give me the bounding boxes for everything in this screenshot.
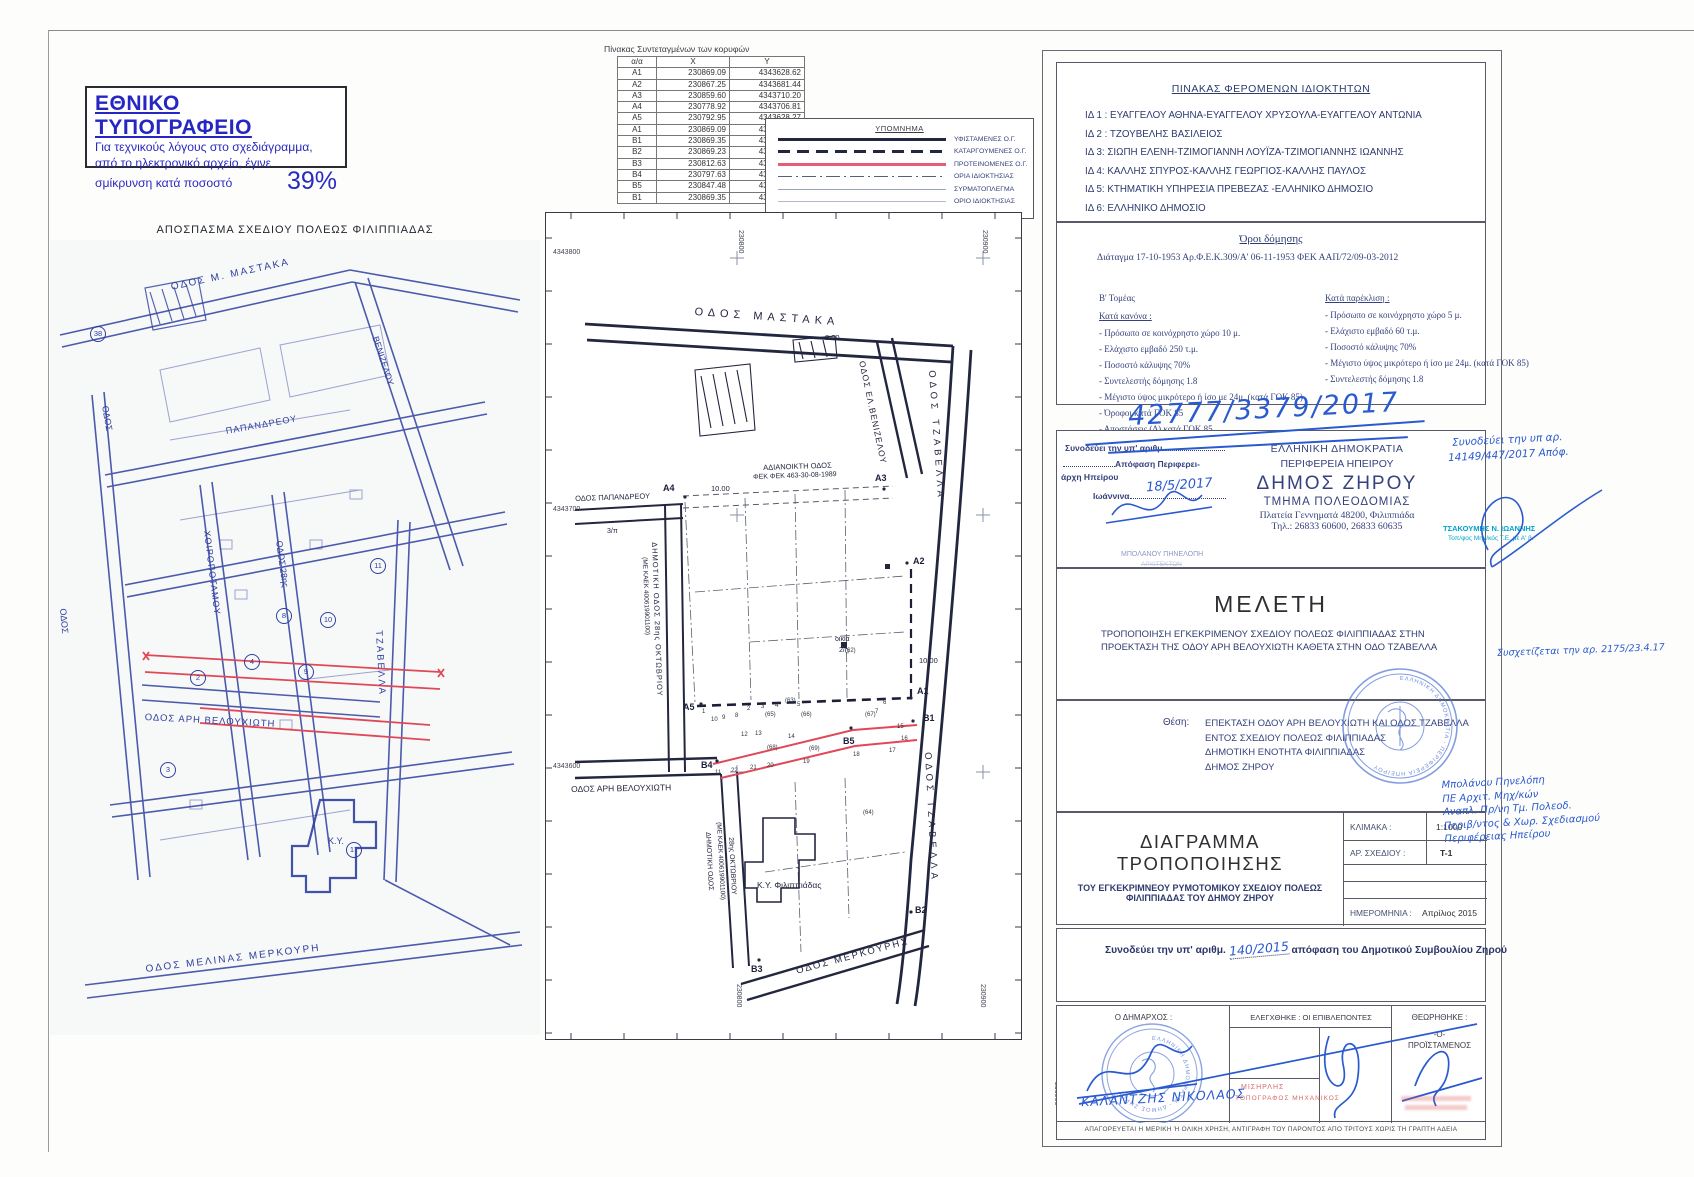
surveyor-stamp-role: Τοπ/φος Μηχ/κός Τ.Ε. με Α' β.: [1448, 535, 1534, 542]
col-header: X: [657, 57, 730, 68]
parcel-number-label: (67): [865, 712, 876, 718]
circled-parcel-number: 4: [244, 654, 260, 670]
legend-line-sample: [778, 150, 946, 153]
council-prefix: Συνοδεύει την υπ' αριθμ.: [1105, 945, 1226, 956]
exception-title: Κατά παρέκλιση :: [1325, 293, 1390, 303]
coord-cell: 4343710.20: [730, 90, 805, 101]
legend-item: ΥΦΙΣΤΑΜΕΝΕΣ Ο.Γ.: [766, 133, 1033, 146]
notice-box: ΕΘΝΙΚΟ ΤΥΠΟΓΡΑΦΕΙΟ Για τεχνικούς λόγους …: [85, 86, 347, 168]
coord-cell: A1: [618, 124, 657, 135]
coord-row: A1230869.094343628.62: [618, 68, 805, 79]
circled-parcel-number: 3: [160, 762, 176, 778]
legend-label: ΥΦΙΣΤΑΜΕΝΕΣ Ο.Γ.: [954, 136, 1016, 143]
coord-cell: 230847.48: [657, 181, 730, 192]
parcel-number-label: 17: [889, 748, 896, 754]
parcel-number-label: 19: [803, 759, 810, 765]
coord-cell: 230792.95: [657, 113, 730, 124]
street-label: οικία: [835, 636, 850, 643]
diagram-subtitle: ΤΟΥ ΕΓΚΕΚΡΙΜΝΕΟΥ ΡΥΜΟΤΟΜΙΚΟΥ ΣΧΕΔΙΟΥ ΠΟΛ…: [1057, 883, 1343, 893]
coord-cell: 230812.63: [657, 158, 730, 169]
term-item: - Ελάχιστο εμβαδό 250 τ.μ.: [1099, 341, 1303, 357]
study-panel: ΜΕΛΕΤΗ ΤΡΟΠΟΠΟΙΗΣΗ ΕΓΚΕΚΡΙΜΕΝΟΥ ΣΧΕΔΙΟΥ …: [1056, 568, 1486, 700]
circled-parcel-number: 17: [346, 842, 362, 858]
signatures-panel: Ο ΔΗΜΑΡΧΟΣ : ΕΛΕΓΧΘΗΚΕ : ΟΙ ΕΠΙΒΛΕΠΟΝΤΕΣ…: [1056, 1005, 1486, 1122]
date-label: ΗΜΕΡΟΜΗΝΙΑ :: [1350, 908, 1412, 918]
faint-red-stamp: [1401, 1096, 1471, 1101]
phone-line: Τηλ.: 26833 60600, 26833 60635: [1217, 521, 1457, 532]
coord-cell: 230869.35: [657, 192, 730, 203]
owner-item: ΙΔ 6: ΕΛΛΗΝΙΚΟ ΔΗΜΟΣΙΟ: [1085, 200, 1485, 219]
location-line: ΕΝΤΟΣ ΣΧΕΔΙΟΥ ΠΟΛΕΩΣ ΦΙΛΙΠΠΙΑΔΑΣ: [1205, 732, 1469, 747]
coord-cell: 230859.60: [657, 90, 730, 101]
building-terms-panel: Όροι δόμησης Διάταγμα 17-10-1953 Αρ.Φ.Ε.…: [1056, 222, 1486, 405]
legend-label: ΟΡΙΑ ΙΔΙΟΚΤΗΣΙΑΣ: [954, 173, 1014, 180]
parcel-number-label: 10: [711, 717, 718, 723]
mayor-label: Ο ΔΗΜΑΡΧΟΣ :: [1057, 1013, 1230, 1022]
checked-label: ΕΛΕΓΧΘΗΚΕ : ΟΙ ΕΠΙΒΛΕΠΟΝΤΕΣ: [1230, 1013, 1392, 1022]
street-label: 10.00: [711, 484, 730, 493]
vertex-label: B4: [701, 760, 713, 770]
vertex-label: B3: [751, 964, 763, 974]
term-item: - Πρόσωπο σε κοινόχρηστο χώρο 10 μ.: [1099, 325, 1303, 341]
vertex-label: A2: [913, 556, 925, 566]
legend-line-sample: [778, 138, 946, 141]
scale-label: ΚΛΙΜΑΚΑ :: [1350, 822, 1391, 832]
legend-label: ΟΡΙΟ ΙΔΙΟΚΤΗΣΙΑΣ: [954, 198, 1015, 205]
coord-cell: B1: [618, 192, 657, 203]
parcel-number-label: 18: [853, 752, 860, 758]
parcel-number-label: 20: [767, 763, 774, 769]
owner-item: ΙΔ 4: ΚΑΛΛΗΣ ΣΠΥΡΟΣ-ΚΑΛΛΗΣ ΓΕΩΡΓΙΟΣ-ΚΑΛΛ…: [1085, 163, 1485, 182]
street-label: Κ.Υ.: [328, 836, 344, 846]
terms-title: Όροι δόμησης: [1057, 233, 1485, 245]
parcel-number-label: 1: [702, 709, 705, 715]
date-value: Απρίλιος 2015: [1422, 908, 1477, 918]
vertex-label: A1: [917, 686, 929, 696]
parcel-number-label: (64): [863, 810, 874, 816]
vertex-label: A5: [683, 702, 695, 712]
parcel-number-label: 22: [731, 768, 738, 774]
drawing-no-value: Τ-1: [1440, 848, 1452, 858]
notice-title: ΕΘΝΙΚΟ ΤΥΠΟΓΡΑΦΕΙΟ: [95, 92, 337, 140]
decision-label2: άρχη Ηπείρου: [1061, 472, 1118, 482]
street-label: ΟΔΟΣ: [58, 608, 70, 634]
coord-row: A3230859.604343710.20: [618, 90, 805, 101]
legend-line-sample: [778, 176, 946, 177]
coord-cell: A4: [618, 102, 657, 113]
council-suffix: απόφαση του Δημοτικού Συμβουλίου Ζηρού: [1292, 945, 1507, 956]
parcel-number-label: 3: [761, 704, 764, 710]
parcel-number-label: (68): [767, 745, 778, 751]
location-line: ΕΠΕΚΤΑΣΗ ΟΔΟΥ ΑΡΗ ΒΕΛΟΥΧΙΩΤΗ ΚΑΙ ΟΔΟΣ ΤΖ…: [1205, 717, 1469, 732]
legend-label: ΣΥΡΜΑΤΟΠΛΕΓΜΑ: [954, 186, 1014, 193]
owner-item: ΙΔ 2 : ΤΖΟΥΒΕΛΗΣ ΒΑΣΙΛΕΙΟΣ: [1085, 126, 1485, 145]
center-map-drawing: [545, 212, 1022, 1040]
rule-title: Κατά κανόνα :: [1099, 311, 1152, 321]
legend-line-sample: [778, 189, 946, 190]
legend-item: ΠΡΟΤΕΙΝΟΜΕΝΕΣ Ο.Γ.: [766, 158, 1033, 171]
city-label: Ιωάννινα: [1093, 491, 1130, 501]
owner-item: ΙΔ 5: ΚΤΗΜΑΤΙΚΗ ΥΠΗΡΕΣΙΑ ΠΡΕΒΕΖΑΣ -ΕΛΛΗΝ…: [1085, 181, 1485, 200]
region-line: ΠΕΡΙΦΕΡΕΙΑ ΗΠΕΙΡΟΥ: [1217, 458, 1457, 470]
left-map-title: ΑΠΟΣΠΑΣΜΑ ΣΧΕΔΙΟΥ ΠΟΛΕΩΣ ΦΙΛΙΠΠΙΑΔΑΣ: [50, 224, 540, 236]
legend-item: ΣΥΡΜΑΤΟΠΛΕΓΜΑ: [766, 183, 1033, 196]
coord-cell: 230867.25: [657, 79, 730, 90]
parcel-number-label: 4: [775, 703, 778, 709]
coord-cell: B4: [618, 169, 657, 180]
parcel-number-label: 13: [755, 731, 762, 737]
location-line: ΔΗΜΟΣ ΖΗΡΟΥ: [1205, 761, 1469, 776]
vertex-label: A4: [663, 483, 675, 493]
location-panel: Θέση: ΕΠΕΚΤΑΣΗ ΟΔΟΥ ΑΡΗ ΒΕΛΟΥΧΙΩΤΗ ΚΑΙ Ο…: [1056, 700, 1486, 812]
empty-row: [1344, 882, 1487, 899]
circled-parcel-number: 10: [320, 612, 336, 628]
coord-cell: 230797.63: [657, 169, 730, 180]
red-stamp-name: ΜΙΣΗΡΛΗΣ: [1241, 1084, 1284, 1091]
architect-stamp-role: ΑΡΧΙΤΕΚΤΩΝ: [1141, 561, 1182, 568]
modification-diagram-map: ΟΔΟΣ ΜΑΣΤΑΚΑΟΔΟΣ ΕΛ.ΒΕΝΙΖΕΛΟΥΟΔΟΣ ΤΖΑΒΕΛ…: [545, 212, 1022, 1040]
handwritten-margin-notes: Μπολάνου ΠηνελόπηΠΕ Αρχιτ. Μηχ/κώνΑναπλ.…: [1441, 771, 1601, 847]
term-item: - Ποσοστό κάλυψης 70%: [1325, 339, 1529, 355]
approved-sub: ΠΡΟΪΣΤΑΜΕΝΟΣ: [1392, 1041, 1487, 1050]
coord-cell: 230869.09: [657, 124, 730, 135]
parcel-number-label: (63): [785, 698, 796, 704]
parcel-number-label: 11: [715, 770, 721, 776]
street-label: 10.00: [919, 656, 938, 665]
coords-table-title: Πίνακας Συντεταγμένων των κορυφών: [604, 44, 749, 54]
disclaimer-strip: ΑΠΑΓΟΡΕΥΕΤΑΙ Η ΜΕΡΙΚΗ Ή ΟΛΙΚΗ ΧΡΗΣΗ, ΑΝΤ…: [1056, 1122, 1486, 1140]
street-label: 8.00: [825, 333, 840, 342]
parcel-number-label: (69): [809, 746, 820, 752]
drawing-no-label: ΑΡ. ΣΧΕΔΙΟΥ :: [1350, 848, 1405, 858]
parcel-number-label: 14: [788, 734, 795, 740]
sheet-left-border: [48, 30, 49, 1152]
parcel-number-label: 6: [883, 700, 886, 706]
vertex-label: B2: [915, 905, 927, 915]
owners-title: ΠΙΝΑΚΑΣ ΦΕΡΟΜΕΝΩΝ ΙΔΙΟΚΤΗΤΩΝ: [1057, 83, 1485, 95]
study-description: ΤΡΟΠΟΠΟΙΗΣΗ ΕΓΚΕΚΡΙΜΕΝΟΥ ΣΧΕΔΙΟΥ ΠΟΛΕΩΣ …: [1101, 628, 1465, 654]
col-header: Y: [730, 57, 805, 68]
col-header: α/α: [618, 57, 657, 68]
legend-item: ΟΡΙΑ ΙΔΙΟΚΤΗΣΙΑΣ: [766, 171, 1033, 184]
legend-label: ΚΑΤΑΡΓΟΥΜΕΝΕΣ Ο.Γ.: [954, 148, 1026, 155]
term-item: - Μέγιστο ύψος μικρότερο ή ίσο με 24μ. (…: [1325, 355, 1529, 371]
sheet-top-border: [48, 30, 1694, 31]
term-item: - Συντελεστής δόμησης 1.8: [1325, 371, 1529, 387]
diagram-title-panel: ΔΙΑΓΡΑΜΜΑ ΤΡΟΠΟΠΟΙΗΣΗΣ ΤΟΥ ΕΓΚΕΚΡΙΜΝΕΟΥ …: [1056, 812, 1486, 925]
legend-label: ΠΡΟΤΕΙΝΟΜΕΝΕΣ Ο.Γ.: [954, 161, 1027, 168]
parcel-number-label: (65): [765, 712, 776, 718]
notice-line: Για τεχνικούς λόγους στο σχεδιάγραμμα,: [95, 140, 337, 156]
coord-cell: A2: [618, 79, 657, 90]
coord-row: A2230867.254343681.44: [618, 79, 805, 90]
faint-red-stamp: [1405, 1105, 1467, 1110]
street-label: ΟΔΟΣ ΑΡΗ ΒΕΛΟΥΧΙΩΤΗ: [571, 782, 671, 794]
circled-parcel-number: 8: [276, 608, 292, 624]
handwritten-margin-note-top: Συσχετίζεται την αρ. 2175/23.4.17: [1497, 642, 1665, 659]
coord-cell: 230869.23: [657, 147, 730, 158]
health-center-building: [292, 800, 376, 892]
parcel-number-label: 8: [735, 713, 738, 719]
reduction-percent: 39%: [287, 171, 337, 191]
legend-item: ΚΑΤΑΡΓΟΥΜΕΝΕΣ Ο.Γ.: [766, 146, 1033, 159]
legend-title: ΥΠΟΜΝΗΜΑ: [766, 124, 1033, 133]
coord-cell: 4343628.62: [730, 68, 805, 79]
vertex-label: A3: [875, 473, 887, 483]
city-plan-excerpt-map: ΟΔΟΣ Μ. ΜΑΣΤΑΚΑΠΑΠΑΝΔΡΕΟΥΟΔΟΣΒΕΝΙΖΕΛΟΥΧΟ…: [50, 240, 540, 1035]
owner-item: ΙΔ 3: ΣΙΩΠΗ ΕΛΕΝΗ-ΤΖΙΜΟΓΙΑΝΝΗ ΛΟΥΪΖΑ-ΤΖΙ…: [1085, 144, 1485, 163]
circled-parcel-number: 2: [190, 670, 206, 686]
address-line: Πλατεία Γεννηματά 48200, Φιλιππιάδα: [1217, 510, 1457, 521]
vertex-label: B1: [923, 713, 935, 723]
coord-cell: B1: [618, 136, 657, 147]
parcel-number-label: 21: [750, 765, 757, 771]
sector-label: Β' Τομέας: [1099, 293, 1135, 303]
abolished-lines: [697, 564, 911, 706]
location-line: ΔΗΜΟΤΙΚΗ ΕΝΟΤΗΤΑ ΦΙΛΙΠΠΙΑΔΑΣ: [1205, 746, 1469, 761]
red-stamp-role: ΤΟΠΟΓΡΑΦΟΣ ΜΗΧΑΝΙΚΟΣ: [1235, 1095, 1340, 1102]
circled-parcel-number: 9: [298, 664, 314, 680]
parcel-number-label: 12: [741, 732, 748, 738]
diagram-subtitle: ΦΙΛΙΠΠΙΑΔΑΣ ΤΟΥ ΔΗΜΟΥ ΖΗΡΟΥ: [1057, 893, 1343, 903]
coord-cell: B2: [618, 147, 657, 158]
architect-stamp-name: ΜΠΟΛΑΝΟΥ ΠΗΝΕΛΟΠΗ: [1121, 551, 1203, 558]
decision-label: Απόφαση Περιφερει-: [1115, 459, 1200, 469]
decree-line: Διάταγμα 17-10-1953 Αρ.Φ.Ε.Κ.309/Α' 06-1…: [1097, 253, 1485, 263]
coord-row: A4230778.924343706.81: [618, 102, 805, 113]
parcel-number-label: 2: [747, 706, 750, 712]
term-item: - Ποσοστό κάλυψης 70%: [1099, 357, 1303, 373]
location-label: Θέση:: [1163, 717, 1189, 728]
coord-cell: 4343706.81: [730, 102, 805, 113]
council-decision-panel: Συνοδεύει την υπ' αριθμ. 140/2015 απόφασ…: [1056, 928, 1486, 1002]
scanned-plan-sheet: ΕΘΝΙΚΟ ΤΥΠΟΓΡΑΦΕΙΟ Για τεχνικούς λόγους …: [0, 0, 1694, 1177]
coord-cell: A3: [618, 90, 657, 101]
legend-line-sample: [778, 201, 946, 202]
vertex-label: B5: [843, 736, 855, 746]
empty-row: [1344, 865, 1487, 882]
parcel-number-label: 16: [901, 736, 908, 742]
coord-cell: B5: [618, 181, 657, 192]
notice-line: σμίκρυνση κατά ποσοστό: [95, 176, 232, 192]
coord-cell: A1: [618, 68, 657, 79]
owners-panel: ΠΙΝΑΚΑΣ ΦΕΡΟΜΕΝΩΝ ΙΔΙΟΚΤΗΤΩΝ ΙΔ 1 : ΕΥΑΓ…: [1056, 62, 1486, 222]
street-label: Κ.Υ. Φιλιππιάδας: [757, 880, 821, 890]
term-item: - Ελάχιστο εμβαδό 60 τ.μ.: [1325, 323, 1529, 339]
municipality-line: ΔΗΜΟΣ ΖΗΡΟΥ: [1217, 473, 1457, 495]
left-map-drawing: [50, 240, 540, 1035]
coord-cell: 230869.35: [657, 136, 730, 147]
term-item: - Πρόσωπο σε κοινόχρηστο χώρο 5 μ.: [1325, 307, 1529, 323]
owner-item: ΙΔ 1 : ΕΥΑΓΓΕΛΟΥ ΑΘΗΝΑ-ΕΥΑΓΓΕΛΟΥ ΧΡΥΣΟΥΛ…: [1085, 107, 1485, 126]
handwritten-decision-number: 140/2015: [1228, 938, 1289, 959]
approved-label: ΘΕΩΡΗΘΗΚΕ :: [1392, 1013, 1487, 1022]
coord-cell: 4343681.44: [730, 79, 805, 90]
legend-line-sample: [778, 163, 946, 166]
surveyor-stamp-name: ΤΣΑΚΟΥΜΗΣ Ν. ΙΩΑΝΝΗΣ: [1443, 524, 1535, 533]
diagram-title: ΔΙΑΓΡΑΜΜΑ ΤΡΟΠΟΠΟΙΗΣΗΣ: [1057, 831, 1343, 875]
street-label: 3/π: [607, 528, 618, 535]
parcel-number-label: 9: [722, 715, 725, 721]
parcel-number-label: 5: [797, 702, 800, 708]
legend-item: ΟΡΙΟ ΙΔΙΟΚΤΗΣΙΑΣ: [766, 196, 1033, 209]
legend-box: ΥΠΟΜΝΗΜΑ ΥΦΙΣΤΑΜΕΝΕΣ Ο.Γ.ΚΑΤΑΡΓΟΥΜΕΝΕΣ Ο…: [765, 118, 1034, 219]
study-title: ΜΕΛΕΤΗ: [1057, 591, 1485, 618]
circled-parcel-number: 38: [90, 326, 106, 342]
coord-cell: B3: [618, 158, 657, 169]
coord-cell: 230869.09: [657, 68, 730, 79]
department-line: ΤΜΗΜΑ ΠΟΛΕΟΔΟΜΙΑΣ: [1217, 496, 1457, 508]
approved-sub: -Ο-: [1392, 1030, 1487, 1039]
circled-parcel-number: 11: [370, 558, 386, 574]
parcel-number-label: (66): [801, 712, 812, 718]
coord-cell: A5: [618, 113, 657, 124]
parcel-number-label: (62): [845, 648, 856, 654]
parcel-number-label: 15: [897, 724, 904, 730]
coord-cell: 230778.92: [657, 102, 730, 113]
coords-header-row: α/α X Y: [618, 57, 805, 68]
term-item: - Συντελεστής δόμησης 1.8: [1099, 373, 1303, 389]
